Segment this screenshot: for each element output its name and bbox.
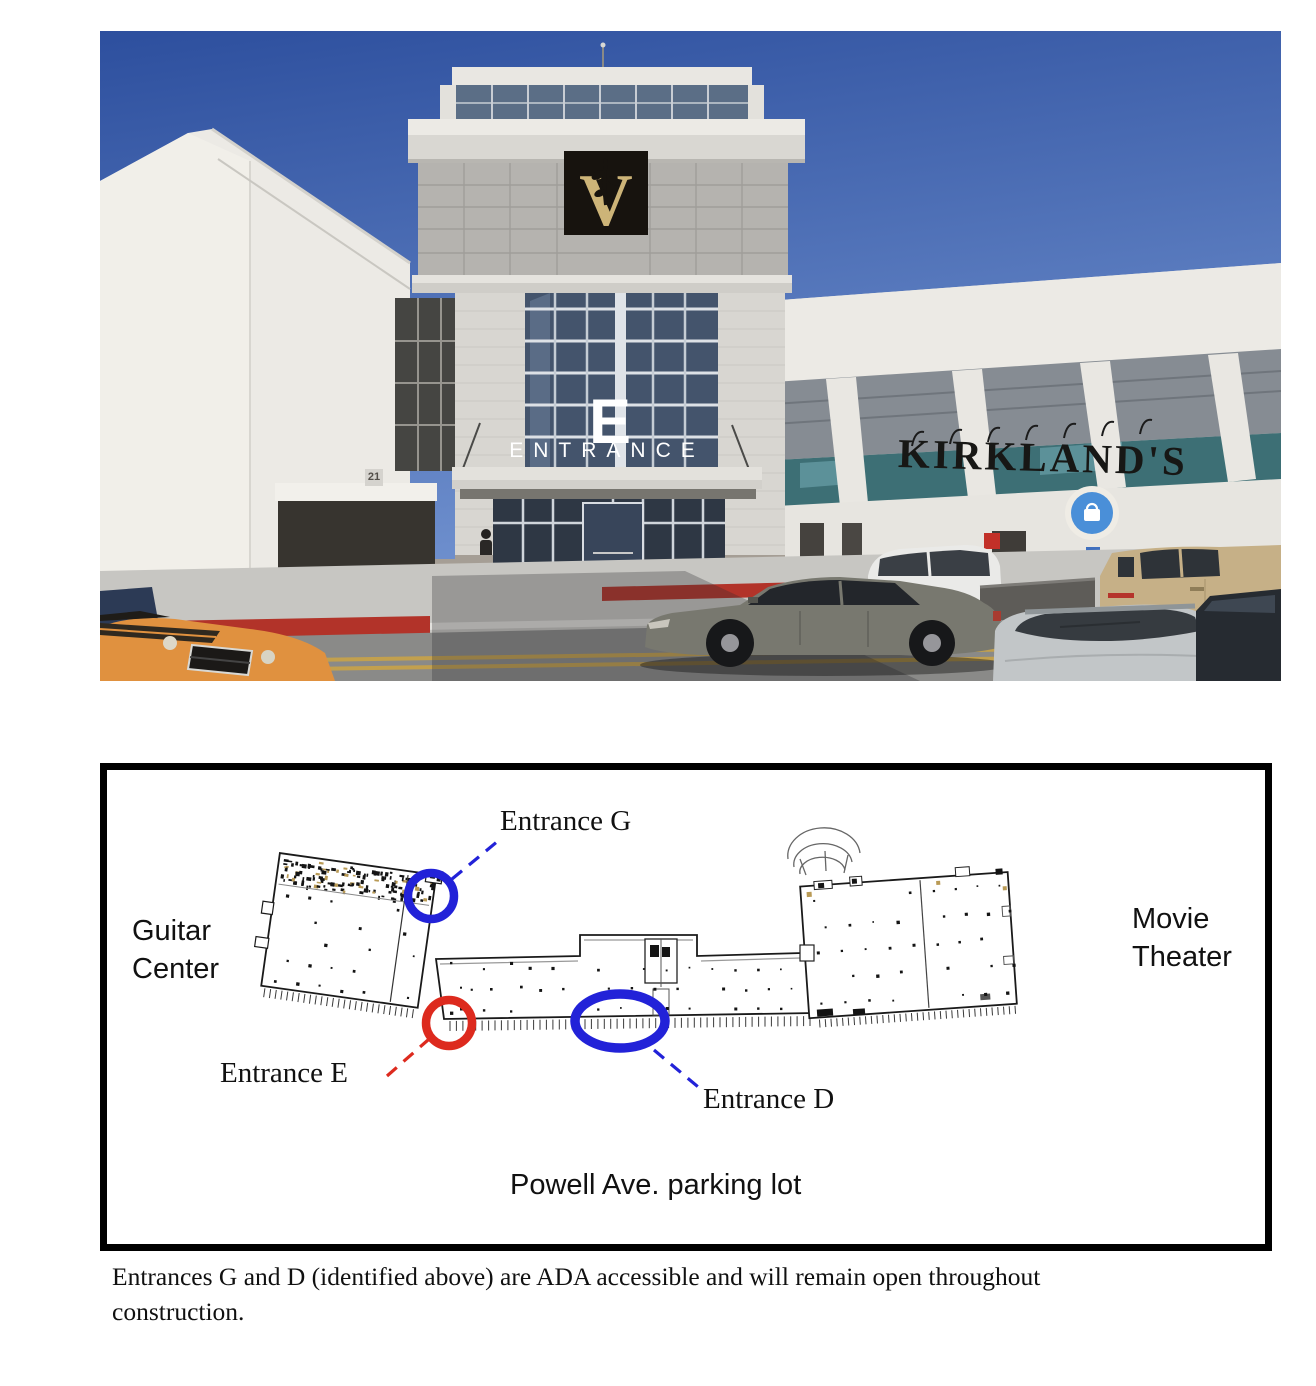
entrance-g-label: Entrance G [500,805,631,838]
store-badge-icon [1065,486,1119,540]
entrance-e-label: Entrance E [220,1057,348,1090]
penthouse-glass [456,85,748,121]
red-sign [984,533,1000,549]
entrance-tower: V [408,43,805,639]
floor-plan: Entrance G Entrance E Entrance D Guitar … [100,763,1272,1251]
parking-lot-label: Powell Ave. parking lot [510,1167,801,1205]
kirklands-sign: KIRKLAND'S [887,429,1198,486]
silver-hatchback [993,605,1225,681]
entrance-letter-sign: E [589,391,631,454]
movie-theater-label: Movie Theater [1132,901,1267,976]
guitar-center-label: Guitar Center [132,913,257,988]
entrance-d-label: Entrance D [703,1083,834,1116]
address-plaque: 21 [365,469,383,486]
caption-text: Entrances G and D (identified above) are… [112,1260,1176,1329]
dark-suv [1196,589,1281,681]
photo-illustration: V [100,31,1281,681]
vanderbilt-v-logo-icon: V [564,151,648,242]
entrance-photo: V [100,31,1281,681]
document-page: V [0,0,1316,1386]
